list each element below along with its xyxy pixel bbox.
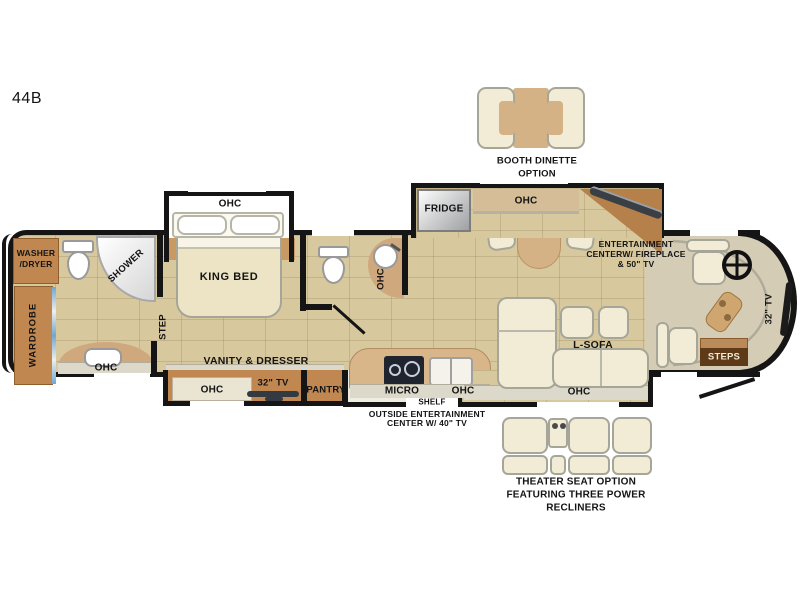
passenger-seat-cushion [668, 327, 698, 365]
pantry-label: PANTRY [306, 385, 345, 396]
cooktop-burner-small [389, 364, 401, 376]
model-label: 44B [12, 90, 42, 108]
window-bed-slide [188, 186, 266, 192]
booth-bench-right-notch [547, 101, 563, 135]
theater-seat-2-back [568, 417, 610, 454]
booth-dinette-label-1: BOOTH DINETTE [497, 156, 577, 167]
console-cupholder-2 [724, 314, 731, 321]
bed-ohc-label: OHC [219, 199, 242, 210]
theater-label-1: THEATER SEAT OPTION [516, 477, 636, 488]
bedroom-tv-label: 32" TV [257, 378, 288, 389]
theater-label-2: FEATURING THREE POWER [506, 490, 645, 501]
theater-seat-1-back [502, 417, 548, 454]
shelf-label: SHELF [418, 398, 445, 407]
theater-footrest-2 [568, 455, 610, 475]
washer-dryer-label-1: WASHER [17, 248, 56, 258]
wall-bedroom-midbath [300, 235, 306, 311]
window-bedroom-slide-bottom [190, 401, 244, 407]
steps-label: STEPS [708, 352, 740, 363]
booth-bench-left-notch [499, 101, 515, 135]
wardrobe-mirror-door [52, 287, 56, 384]
wall-bedslide-right-ext [289, 238, 294, 262]
mid-bath-ohc-label: OHC [376, 268, 387, 290]
theater-footrest-1 [502, 455, 548, 475]
steering-wheel [720, 248, 754, 282]
step-label: STEP [158, 314, 169, 340]
bedroom-tv-stand [265, 397, 283, 401]
wall-bath-bedroom-upper [157, 235, 163, 297]
theater-console [548, 418, 568, 448]
theater-footrest-3 [612, 455, 652, 475]
window-sofa-slide-bottom [537, 402, 619, 408]
ottoman-left [560, 306, 594, 339]
entertainment-center-label-1: ENTERTAINMENT [599, 239, 674, 249]
rear-bumper [2, 234, 12, 373]
l-sofa-chaise [497, 297, 557, 389]
window-midbath-top [312, 230, 354, 236]
cooktop-burner-large [404, 361, 420, 377]
theater-cupholder-2 [560, 423, 566, 429]
kitchen-ohc-label: OHC [452, 386, 475, 397]
ottoman-right [598, 306, 629, 339]
bed-pillow-right [230, 215, 280, 235]
wall-bedslide-left-ext [164, 238, 169, 262]
floorplan-canvas: 44B BOOTH DINETTE OPTION WASHER /DRYER W… [0, 0, 800, 600]
bath-ohc-label: OHC [95, 363, 118, 374]
theater-footrest-console [550, 455, 566, 475]
wall-midbath-stub [306, 304, 332, 310]
front-tv-label: 32" TV [764, 293, 775, 324]
micro-label: MICRO [385, 386, 419, 397]
outside-entertainment-label-2: CENTER W/ 40" TV [387, 418, 467, 428]
bedroom-ohc-label: OHC [201, 385, 224, 396]
theater-cupholder-1 [552, 423, 558, 429]
entertainment-center-label-2: CENTERW/ FIREPLACE [586, 249, 685, 259]
bed-pillow-left [177, 215, 227, 235]
l-sofa-cushion-line-1 [498, 330, 556, 332]
vanity-dresser-label: VANITY & DRESSER [204, 355, 309, 367]
king-bed-label: KING BED [200, 271, 259, 283]
washer-dryer-label-2: /DRYER [19, 259, 52, 269]
dinette-ohc-label: OHC [515, 196, 538, 207]
window-cockpit-top [690, 230, 738, 236]
wardrobe-label: WARDROBE [28, 303, 39, 367]
theater-label-3: RECLINERS [546, 503, 606, 514]
window-bath-bottom [94, 373, 150, 378]
wall-bath-bedroom-lower [151, 341, 157, 375]
l-sofa-label: L-SOFA [573, 339, 613, 351]
booth-dinette-label-2: OPTION [518, 169, 556, 180]
sofa-ohc-label: OHC [568, 387, 591, 398]
booth-table [513, 88, 549, 148]
entertainment-center-label-3: & 50" TV [618, 259, 655, 269]
kitchen-sink-divider [450, 359, 452, 384]
entry-door-opening [661, 372, 697, 378]
wall-midbath-kitchen [402, 235, 408, 295]
fridge-label: FRIDGE [425, 204, 464, 215]
l-sofa-cushion-line-2 [600, 350, 602, 386]
console-cupholder-1 [719, 300, 726, 307]
theater-seat-3-back [612, 417, 652, 454]
